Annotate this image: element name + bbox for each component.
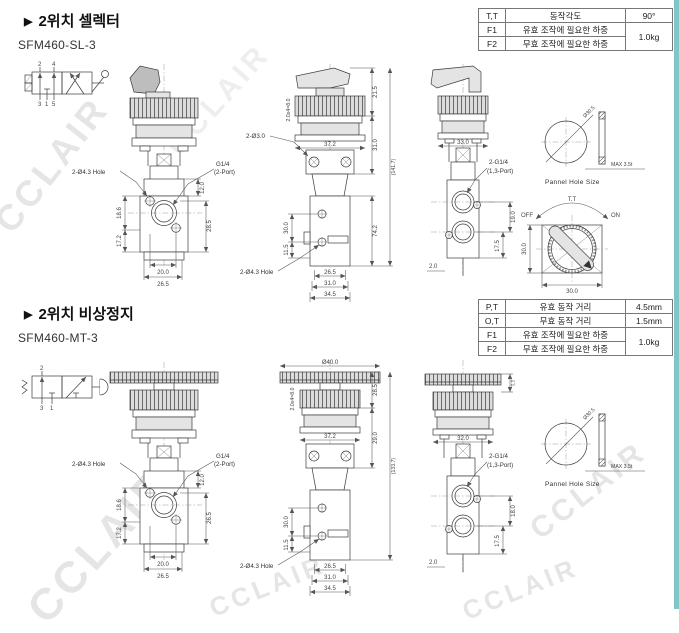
ribbed-ring: [130, 98, 198, 118]
port-callout-label: (1,3-Port): [487, 462, 513, 469]
panel-hole-diameter: Ø30.5: [582, 105, 596, 119]
selector-knob-lever: [130, 66, 160, 94]
selector-knob-lever-top: [547, 224, 596, 273]
dim-31: 31.0: [324, 281, 336, 287]
panel-hole-diagram: Ø30.5 MAX 3.5t Pannel Hole Size: [533, 96, 679, 202]
page-edge-accent: [674, 0, 679, 609]
dim-31: 31.0: [373, 139, 379, 151]
dim-28-5: 28.5: [373, 384, 379, 396]
selector-knob-lever: [431, 66, 481, 92]
mushroom-cap: [280, 372, 380, 383]
spec-code: P,T: [479, 300, 506, 314]
dim-18: 18.0: [511, 505, 517, 517]
valve-body: [310, 196, 350, 266]
port-callout-label: G1/4: [216, 161, 230, 168]
dim-cap-dia: Ø40.0: [322, 360, 339, 366]
valve-body: [447, 180, 479, 258]
dim-11-5: 11.5: [284, 244, 290, 256]
rib-pitch-label: 2.0x4=8.0: [286, 98, 292, 121]
dim-18-6: 18.6: [117, 207, 123, 219]
table-row: F1 유효 조작에 필요한 하중 1.0kg: [479, 23, 673, 37]
dim-11-5: 11.5: [284, 539, 290, 551]
selector-front-view-drawing: 2-Ø4.3 Hole G1/4 (2-Port) 12.0 18.6 17.2…: [70, 62, 245, 297]
valve-shoulder: [144, 179, 184, 196]
dim-21-5: 21.5: [373, 86, 379, 98]
port-number: 5: [52, 102, 56, 108]
spec-table-estop: P,T 유효 동작 거리 4.5mm O,T 무효 동작 거리 1.5mm F1…: [478, 299, 673, 356]
port-number: 4: [52, 62, 56, 68]
dim-29: 29.0: [373, 432, 379, 444]
port-callout-label: 2-G1/4: [489, 159, 508, 166]
dim-28-5: 28.5: [207, 220, 213, 232]
ribbed-ring: [295, 96, 365, 116]
dim-37-2: 37.2: [324, 142, 336, 148]
arrow-marker: ▶: [24, 309, 32, 321]
table-row: P,T 유효 동작 거리 4.5mm: [479, 300, 673, 314]
port-number: 1: [50, 406, 54, 412]
spec-desc: 유효 동작 거리: [506, 300, 626, 314]
spec-value: 1.0kg: [626, 23, 673, 51]
port-callout-label: (2-Port): [214, 169, 235, 176]
table-row: F1 유효 조작에 필요한 하중 1.0kg: [479, 328, 673, 342]
dim-12: 12.0: [200, 182, 206, 194]
mushroom-cap: [110, 372, 218, 383]
spec-value: 1.5mm: [626, 314, 673, 328]
dim-30: 30.0: [566, 289, 578, 295]
dim-74-2: 74.2: [373, 225, 379, 237]
spec-desc: 유효 조작에 필요한 하중: [506, 23, 626, 37]
panel-max-thickness: MAX 3.5t: [611, 162, 633, 168]
ribbed-ring: [438, 96, 488, 114]
dim-17-5: 17.5: [495, 240, 501, 252]
estop-side-view-drawing: Ø40.0 2.0x4=8.0 37.2 28.5 29.0 (133.7) 3…: [238, 358, 438, 605]
spec-value: 90°: [626, 9, 673, 23]
spec-code: F2: [479, 37, 506, 51]
spec-code: T,T: [479, 9, 506, 23]
hole-callout-label: 2-Ø4.3 Hole: [72, 461, 106, 468]
dim-26-5: 26.5: [324, 270, 336, 276]
spec-table-selector: T,T 동작각도 90° F1 유효 조작에 필요한 하중 1.0kg F2 무…: [478, 8, 673, 51]
port-number: 3: [40, 406, 44, 412]
port-callout-label: (1,3-Port): [487, 168, 513, 175]
panel-hole-diagram: Ø30.5 MAX 3.5t Pannel Hole Size: [533, 398, 679, 504]
spec-desc: 무효 조작에 필요한 하중: [506, 37, 626, 51]
dim-2: 2.0: [429, 264, 438, 270]
spec-desc: 무효 조작에 필요한 하중: [506, 342, 626, 356]
dim-travel: T.T: [511, 379, 517, 387]
spec-desc: 동작각도: [506, 9, 626, 23]
dim-17-5: 17.5: [495, 535, 501, 547]
dim-30: 30.0: [284, 516, 290, 528]
angle-label: T.T: [568, 197, 577, 203]
dim-17-2: 17.2: [117, 527, 123, 539]
panel-max-thickness: MAX 3.5t: [611, 464, 633, 470]
dim-2: 2.0: [429, 560, 438, 566]
dim-20: 20.0: [157, 270, 169, 276]
spec-code: F1: [479, 23, 506, 37]
dim-37-2: 37.2: [324, 434, 336, 440]
section-title-estop: ▶2위치 비상정지: [24, 303, 134, 324]
panel-cross-section: [599, 414, 605, 466]
dim-26-5: 26.5: [157, 282, 169, 288]
spec-value: 4.5mm: [626, 300, 673, 314]
arrow-marker: ▶: [24, 16, 32, 28]
panel-hole-caption: Pannel Hole Size: [545, 481, 600, 488]
spec-value: 1.0kg: [626, 328, 673, 356]
dim-18-6: 18.6: [117, 499, 123, 511]
spec-code: F2: [479, 342, 506, 356]
dim-32: 32.0: [457, 436, 469, 442]
section-title-selector: ▶2위치 셀렉터: [24, 10, 120, 31]
ribbed-ring: [433, 392, 493, 410]
hole-callout-label: 2-Ø4.3 Hole: [240, 269, 274, 276]
dim-30: 30.0: [284, 222, 290, 234]
panel-hole-caption: Pannel Hole Size: [545, 179, 600, 186]
panel-cross-section: [599, 112, 605, 164]
dim-17-2: 17.2: [117, 235, 123, 247]
catalog-page: { "watermark": "CCLAIR", "selector": { "…: [0, 0, 679, 609]
mushroom-cap: [425, 374, 501, 385]
dim-12: 12.0: [200, 474, 206, 486]
dim-30: 30.0: [522, 243, 528, 255]
spec-code: O,T: [479, 314, 506, 328]
port-callout-label: 2-G1/4: [489, 453, 508, 460]
port-number: 2: [40, 366, 44, 372]
valve-body: [310, 490, 350, 560]
table-row: T,T 동작각도 90°: [479, 9, 673, 23]
port-number: 3: [38, 102, 42, 108]
dim-19: 19.0: [511, 211, 517, 223]
model-number-selector: SFM460-SL-3: [18, 38, 96, 52]
dim-26-5: 26.5: [207, 512, 213, 524]
spring-symbol: [22, 380, 27, 394]
dim-33: 33.0: [457, 140, 469, 146]
selector-knob-lever: [296, 68, 350, 88]
port-number: 2: [38, 62, 42, 68]
estop-front-view-drawing: 2-Ø4.3 Hole G1/4 (2-Port) 12.0 18.6 17.2…: [70, 358, 245, 605]
hole-callout-label: 2-Ø3.0: [246, 133, 265, 140]
off-label: OFF: [521, 213, 533, 219]
hole-callout-label: 2-Ø4.3 Hole: [72, 169, 106, 176]
spec-code: F1: [479, 328, 506, 342]
dim-total: (141.7): [391, 159, 397, 176]
ribbed-ring: [300, 390, 360, 408]
panel-hole-diameter: Ø30.5: [582, 407, 596, 421]
rib-pitch-label: 2.0x4=8.0: [290, 387, 296, 410]
spec-desc: 유효 조작에 필요한 하중: [506, 328, 626, 342]
dim-26-5: 26.5: [324, 564, 336, 570]
model-number-estop: SFM460-MT-3: [18, 331, 98, 345]
ribbed-ring: [130, 390, 198, 410]
dim-20: 20.0: [157, 562, 169, 568]
dim-31: 31.0: [324, 575, 336, 581]
dim-34-5: 34.5: [324, 292, 336, 298]
dim-total: (133.7): [391, 458, 397, 475]
table-row: O,T 무효 동작 거리 1.5mm: [479, 314, 673, 328]
port-number: 1: [45, 102, 49, 108]
selector-side-view-drawing: 2.0x4=8.0 37.2 2-Ø3.0 21.5 31.0 74.2 (14…: [238, 62, 438, 304]
port-callout-label: (2-Port): [214, 461, 235, 468]
port-callout-label: G1/4: [216, 453, 230, 460]
hole-callout-label: 2-Ø4.3 Hole: [240, 563, 274, 570]
spec-desc: 무효 동작 거리: [506, 314, 626, 328]
valve-shoulder: [144, 471, 184, 488]
dim-26-5: 26.5: [157, 574, 169, 580]
knob-top-view-drawing: T.T OFF ON 30.0 30.0: [518, 193, 668, 295]
on-label: ON: [611, 213, 620, 219]
estop-right-view-drawing: T.T 32.0 2-G1/4 (1,3-Port) 18.0 17.5 2.0: [425, 358, 543, 605]
dim-34-5: 34.5: [324, 586, 336, 592]
